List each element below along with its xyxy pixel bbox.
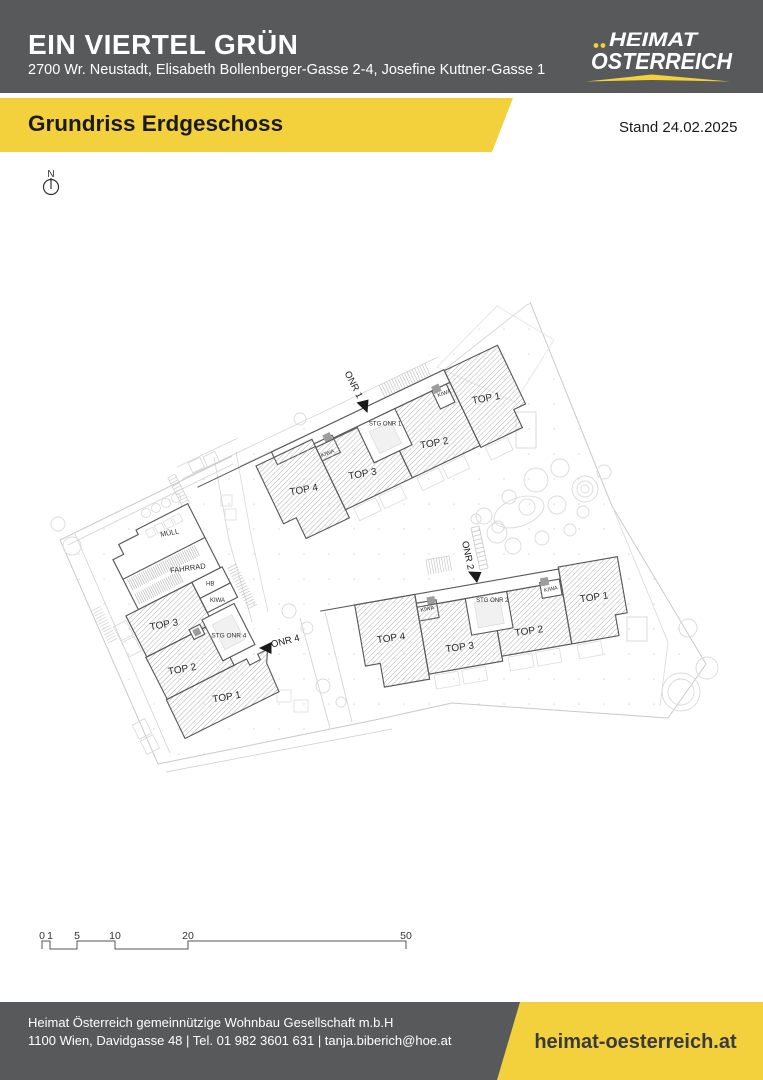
svg-text:HB: HB: [206, 581, 214, 587]
svg-text:10: 10: [109, 930, 121, 942]
svg-text:50: 50: [400, 930, 412, 942]
svg-text:0: 0: [39, 930, 45, 942]
svg-text:KIWA: KIWA: [210, 598, 225, 604]
svg-text:ONR 1: ONR 1: [342, 369, 365, 400]
svg-text:N: N: [47, 169, 54, 180]
svg-text:STG ONR 1: STG ONR 1: [369, 422, 402, 428]
svg-text:1: 1: [47, 930, 53, 942]
svg-text:5: 5: [74, 930, 80, 942]
svg-text:20: 20: [182, 930, 194, 942]
svg-text:STG ONR 4: STG ONR 4: [211, 633, 246, 640]
svg-text:STG ONR 2: STG ONR 2: [476, 598, 509, 604]
